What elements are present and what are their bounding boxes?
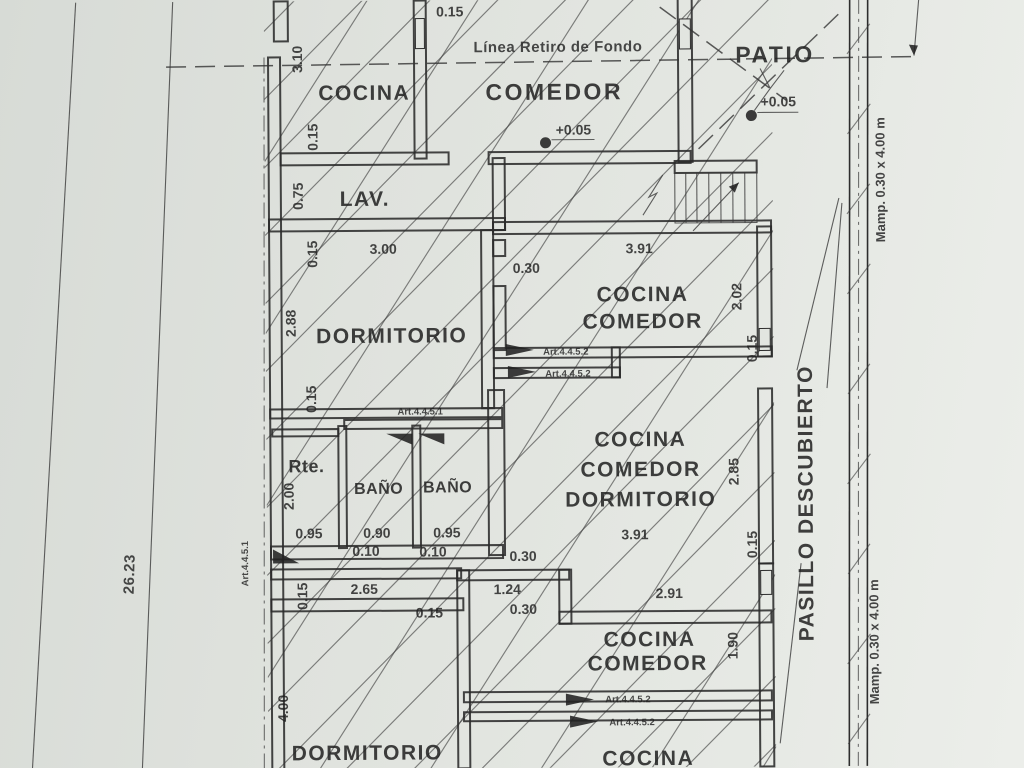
room-label-bano-2: BAÑO	[423, 476, 472, 496]
dimension-label: 0.95	[433, 524, 461, 540]
room-label-cocina-comedor-mid: COMEDOR	[582, 310, 702, 334]
room-label-dormitorio-mid: DORMITORIO	[316, 324, 467, 348]
dimension-label: 0.10	[419, 543, 447, 559]
dimension-label: 0.30	[510, 601, 538, 617]
dimension-label: 3.00	[369, 241, 397, 257]
dimension-label: 0.15	[744, 335, 760, 363]
dimension-label: 2.88	[283, 309, 299, 337]
dimension-label: 4.00	[275, 695, 291, 723]
dimension-label: 0.15	[304, 123, 320, 151]
dimension-label: 2.91	[656, 585, 684, 601]
room-label-patio: PATIO	[735, 41, 815, 67]
room-label-cocina-comedor-mid: COCINA	[596, 283, 688, 307]
dimension-label: 0.30	[509, 548, 537, 564]
paper-edge-lines	[28, 2, 269, 768]
code-annotation: Art.4.4.5.2	[545, 369, 590, 380]
dimension-label: 0.15	[416, 604, 444, 620]
dimension-label: 3.10	[289, 45, 305, 73]
level-value: +0.05	[761, 93, 797, 109]
dimension-label: 3.91	[625, 240, 653, 256]
room-label-rte: Rte.	[288, 456, 324, 476]
code-annotation: Art.4.4.5.1	[240, 540, 251, 586]
dimension-label: 2.85	[725, 458, 741, 486]
dimension-label: 2.00	[281, 482, 297, 510]
room-label-lav: LAV.	[340, 188, 390, 211]
dimension-label: 0.15	[744, 531, 760, 559]
dimension-label: 0.95	[295, 525, 323, 541]
room-label-pasillo-descubierto: PASILLO DESCUBIERTO	[794, 365, 819, 641]
code-annotation: Art.4.4.5.1	[397, 406, 443, 417]
patio-marks	[660, 6, 844, 149]
floor-plan-canvas: +0.05 +0.05	[0, 0, 1024, 768]
boundary-wall-note-top: Mamp. 0.30 x 4.00 m	[872, 117, 888, 242]
room-label-ccd: COCINA	[594, 428, 686, 452]
room-label-ccd: DORMITORIO	[565, 488, 716, 512]
stair-break-line	[643, 175, 663, 215]
room-label-cocina-bottom: COCINA	[602, 747, 694, 768]
dimension-label: 3.91	[621, 526, 649, 542]
dimension-label: 0.10	[352, 543, 380, 559]
code-annotation: Art.4.4.5.2	[605, 694, 650, 705]
level-marker-patio: +0.05	[746, 93, 799, 121]
level-value: +0.05	[556, 122, 592, 138]
room-label-cocina-comedor-bottom: COMEDOR	[588, 652, 708, 676]
room-label-bano-1: BAÑO	[354, 478, 403, 498]
level-marker-comedor: +0.05	[540, 121, 595, 148]
setback-line-label: Línea Retiro de Fondo	[473, 38, 642, 56]
scanned-floor-plan: +0.05 +0.05	[0, 0, 1024, 768]
boundary-wall-note-bottom: Mamp. 0.30 x 4.00 m	[866, 579, 882, 704]
dimension-label: 2.02	[728, 283, 744, 311]
dimension-label: 0.15	[304, 240, 320, 268]
room-label-comedor-top: COMEDOR	[485, 78, 623, 105]
dimension-label: 0.75	[290, 182, 306, 210]
room-label-dormitorio-bottom: DORMITORIO	[292, 741, 443, 765]
room-label-cocina-comedor-bottom: COCINA	[604, 628, 696, 652]
room-label-ccd: COMEDOR	[580, 458, 700, 482]
code-annotation: Art.4.4.5.2	[609, 717, 654, 728]
code-annotation: Art.4.4.5.2	[543, 347, 588, 358]
dimension-label: 0.15	[436, 3, 464, 19]
setback-dimension-arrow	[909, 0, 919, 56]
dimension-label: 0.15	[303, 385, 319, 413]
dimension-label: 2.65	[351, 581, 379, 597]
lot-length-dimension: 26.23	[121, 554, 139, 595]
room-label-cocina-top: COCINA	[318, 82, 410, 106]
dimension-label: 1.90	[725, 632, 741, 660]
dimension-label: 1.24	[494, 581, 522, 597]
dimension-label: 0.30	[513, 260, 541, 276]
dimension-label: 0.90	[363, 525, 391, 541]
dimension-labels: 0.153.100.150.753.000.152.880.150.303.91…	[271, 1, 762, 722]
dimension-label: 0.15	[294, 582, 310, 610]
